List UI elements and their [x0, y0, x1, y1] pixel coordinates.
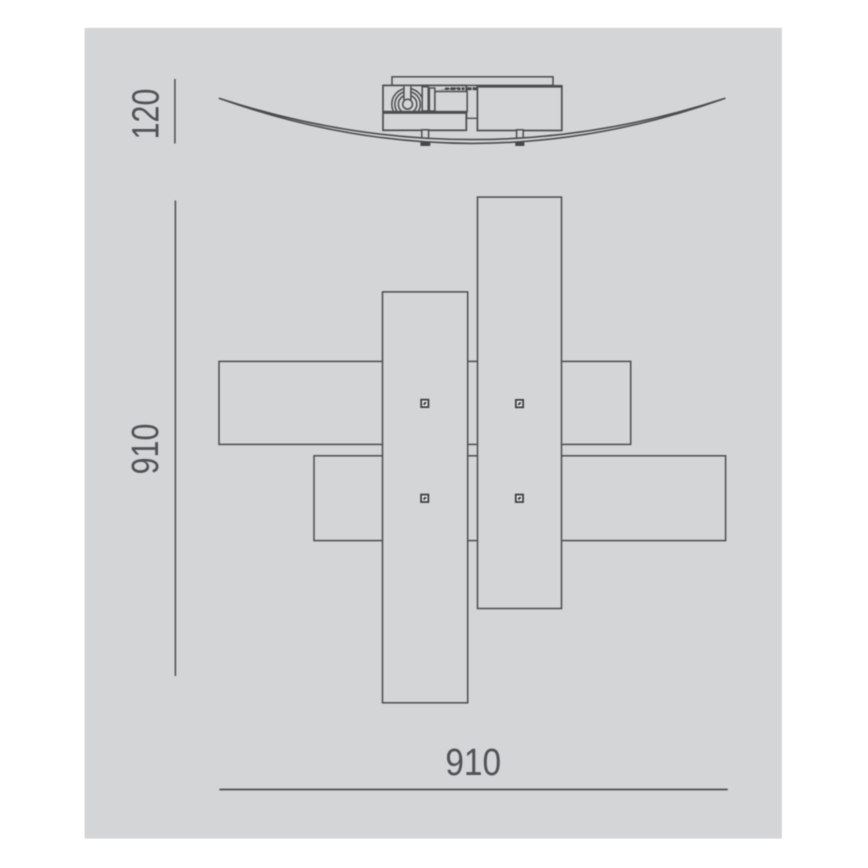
svg-text:910: 910: [445, 741, 501, 783]
svg-text:120: 120: [125, 89, 167, 140]
svg-text:910: 910: [125, 424, 167, 475]
